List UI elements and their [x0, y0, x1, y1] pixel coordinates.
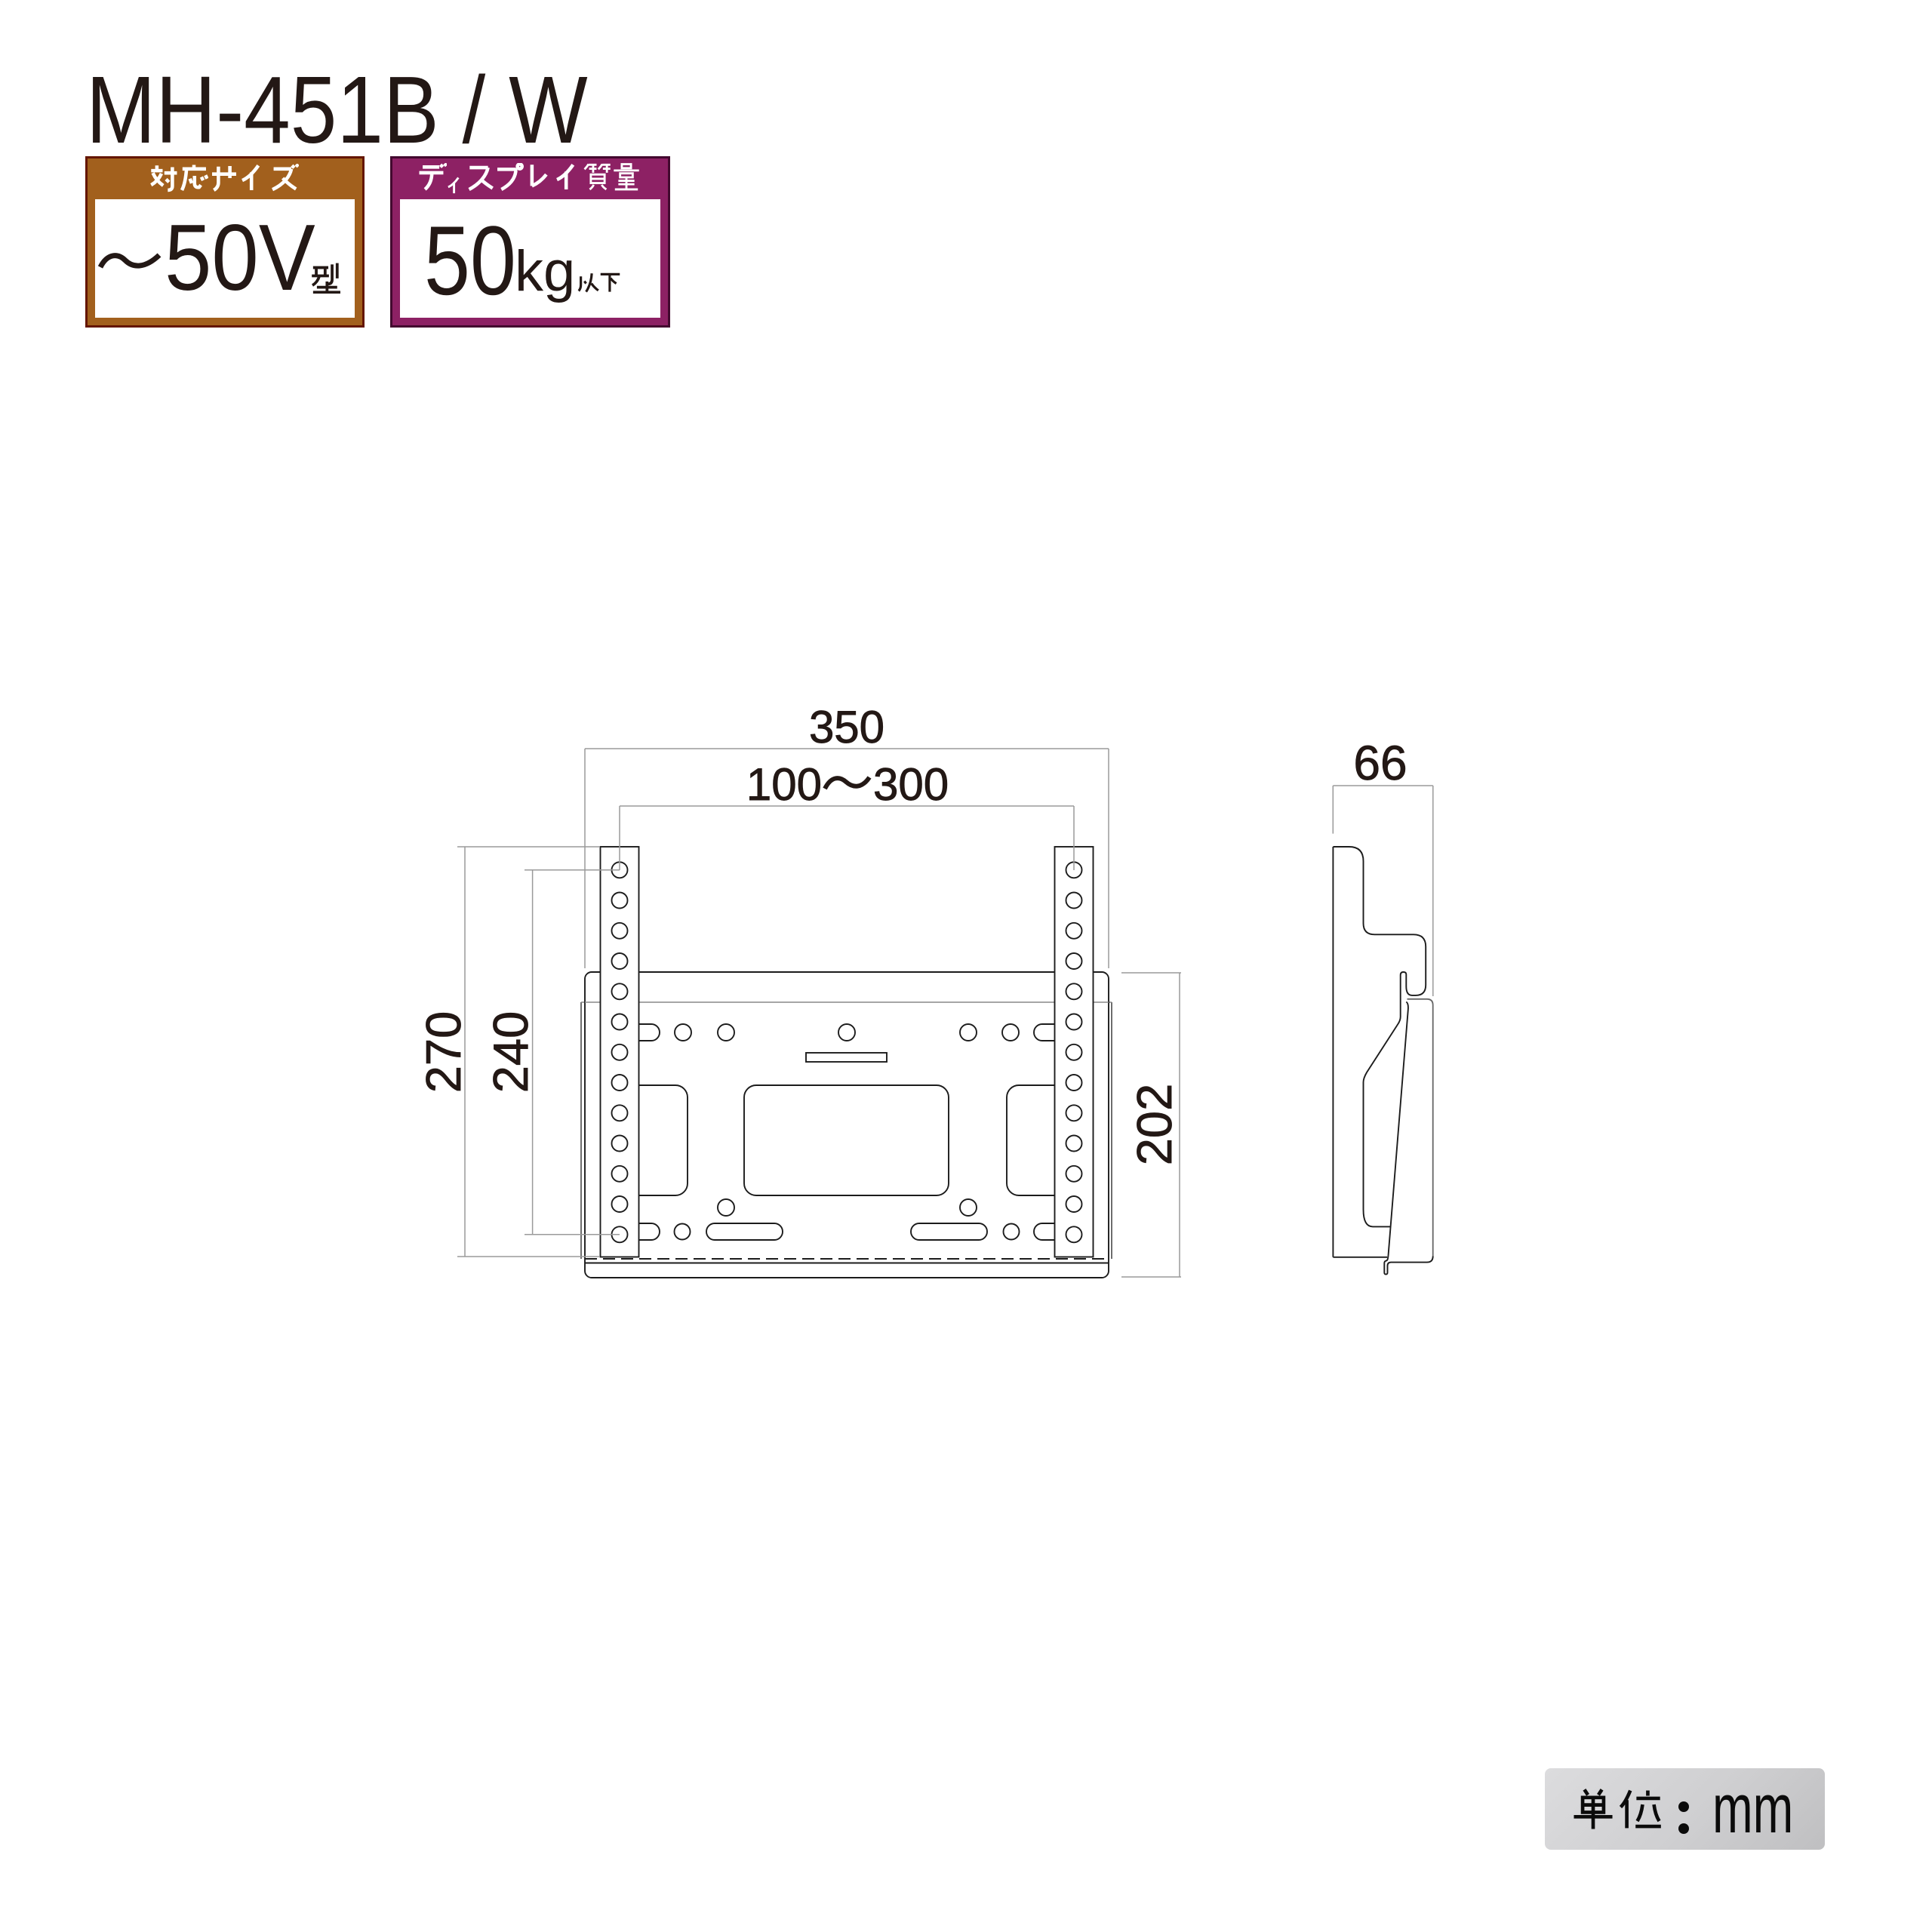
- svg-text:66: 66: [1353, 736, 1407, 790]
- svg-text:350: 350: [809, 702, 884, 752]
- svg-text:270: 270: [416, 1011, 471, 1093]
- svg-text:100: 100: [746, 759, 822, 810]
- svg-text:240: 240: [483, 1011, 538, 1093]
- svg-text:202: 202: [1127, 1084, 1182, 1165]
- svg-text:300: 300: [873, 759, 949, 810]
